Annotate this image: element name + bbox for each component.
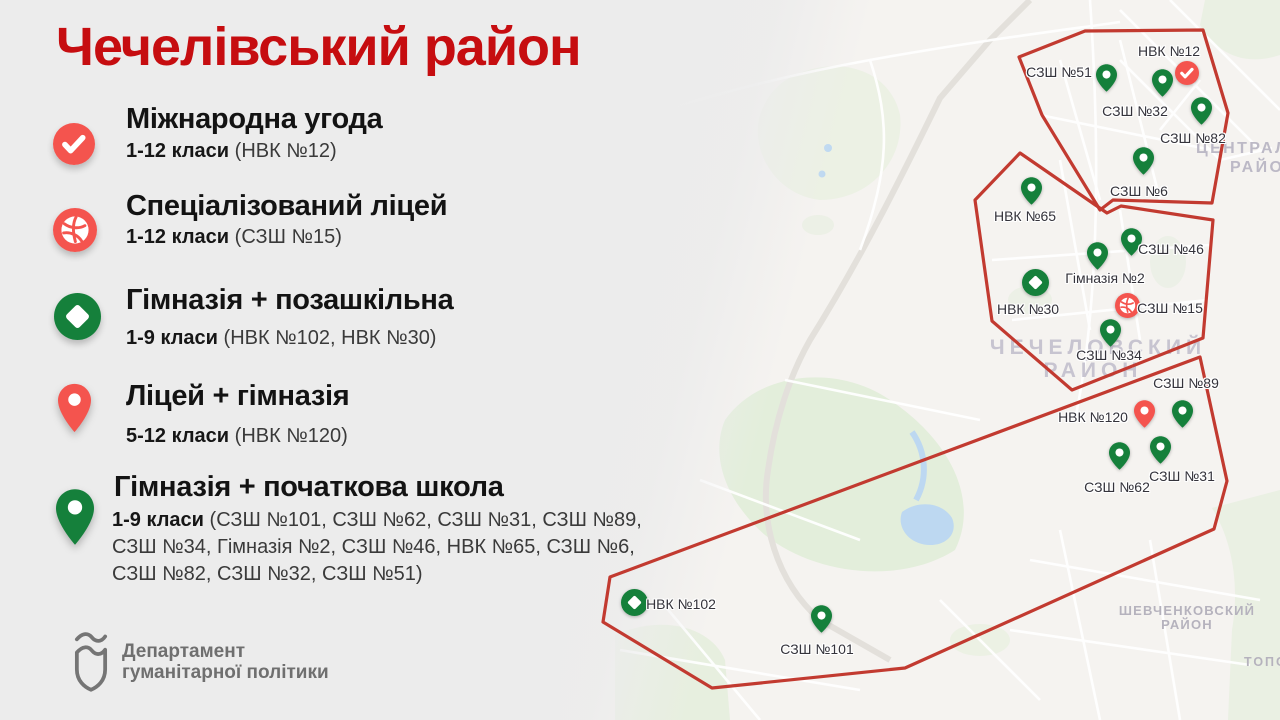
green-pin-marker — [1021, 177, 1042, 205]
map-marker-label: СЗШ №32 — [1102, 103, 1168, 119]
map-marker-label: НВК №12 — [1138, 43, 1200, 59]
green-pin-marker — [1172, 400, 1193, 428]
check-circle-marker — [1175, 61, 1199, 85]
sport-ball-icon — [53, 208, 97, 252]
red-pin-marker — [1134, 400, 1155, 428]
map-marker-label: СЗШ №101 — [780, 641, 854, 657]
map-marker-label: СЗШ №31 — [1149, 468, 1215, 484]
legend-item-title: Гімназія + початкова школа — [114, 471, 504, 504]
ball-circle-marker — [1115, 293, 1140, 318]
green-pin-marker — [1150, 436, 1171, 464]
green-pin-icon — [56, 489, 94, 545]
map-marker-label: Гімназія №2 — [1065, 270, 1144, 286]
legend-panel: Чечелівський район Міжнародна угода 1-12… — [0, 0, 720, 720]
green-pin-marker — [1109, 442, 1130, 470]
map-marker-label: СЗШ №82 — [1160, 130, 1226, 146]
map-marker-label: СЗШ №46 — [1138, 241, 1204, 257]
legend-item-title: Ліцей + гімназія — [126, 380, 349, 413]
map-marker-label: НВК №120 — [1058, 409, 1128, 425]
department-logo-icon — [72, 628, 110, 694]
legend-item-title: Спеціалізований ліцей — [126, 190, 447, 223]
org-name: Департамент гуманітарної політики — [122, 641, 329, 683]
legend-item-title: Гімназія + позашкільна — [126, 284, 453, 317]
map-marker-label: СЗШ №51 — [1026, 64, 1092, 80]
infographic-canvas: ЦЕНТРАЛ РАЙО ЧЕЧЕЛОВСКИЙ РАЙОН ШЕВЧЕНКОВ… — [0, 0, 1280, 720]
legend-item-detail: 1-9 класи (НВК №102, НВК №30) — [126, 327, 436, 350]
legend-item-detail: 1-12 класи (НВК №12) — [126, 140, 337, 163]
green-pin-marker — [811, 605, 832, 633]
page-title: Чечелівський район — [56, 16, 581, 78]
map-marker-label: СЗШ №89 — [1153, 375, 1219, 391]
map-marker-label: СЗШ №62 — [1084, 479, 1150, 495]
map-marker-label: СЗШ №6 — [1110, 183, 1168, 199]
green-pin-marker — [1096, 64, 1117, 92]
green-pin-marker — [1191, 97, 1212, 125]
legend-item-detail: 1-9 класи (СЗШ №101, СЗШ №62, СЗШ №31, С… — [112, 507, 652, 588]
green-pin-marker — [1152, 69, 1173, 97]
diamond-circle-marker — [1022, 269, 1049, 296]
map-marker-label: НВК №30 — [997, 301, 1059, 317]
green-pin-marker — [1100, 319, 1121, 347]
map-marker-label: СЗШ №34 — [1076, 347, 1142, 363]
map-marker-label: НВК №65 — [994, 208, 1056, 224]
green-pin-marker — [1133, 147, 1154, 175]
green-pin-marker — [1087, 242, 1108, 270]
map-marker-label: СЗШ №15 — [1137, 300, 1203, 316]
red-pin-icon — [58, 383, 91, 433]
legend-item-detail: 5-12 класи (НВК №120) — [126, 425, 348, 448]
legend-item-detail: 1-12 класи (СЗШ №15) — [126, 226, 342, 249]
diamond-icon — [54, 293, 101, 340]
check-circle-icon — [53, 123, 95, 165]
legend-item-title: Міжнародна угода — [126, 103, 382, 136]
